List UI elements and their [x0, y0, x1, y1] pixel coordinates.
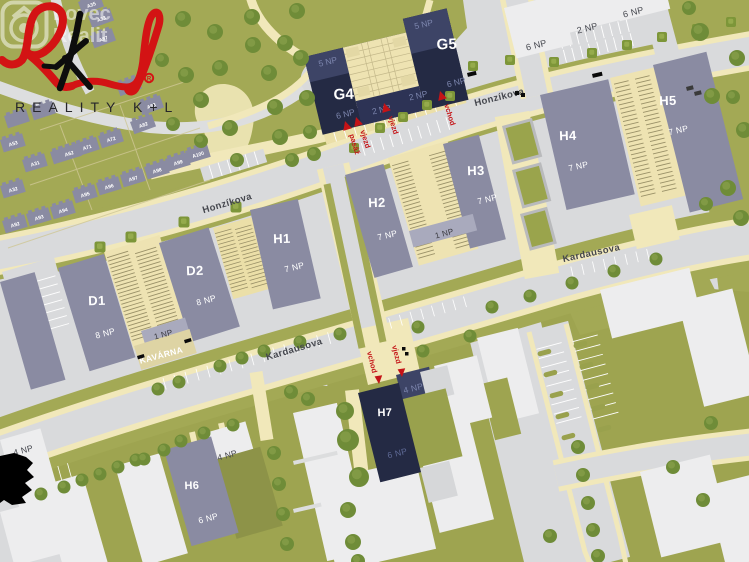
- svg-text:H3: H3: [467, 163, 485, 179]
- svg-text:H1: H1: [273, 231, 291, 247]
- svg-text:H5: H5: [659, 93, 677, 109]
- svg-text:D1: D1: [88, 293, 106, 309]
- svg-text:G5: G5: [436, 36, 457, 54]
- svg-text:D2: D2: [186, 263, 204, 279]
- svg-text:H4: H4: [559, 128, 577, 144]
- svg-text:G4: G4: [333, 86, 355, 104]
- svg-text:R: R: [147, 77, 152, 83]
- svg-text:H6: H6: [184, 480, 199, 493]
- svg-text:H7: H7: [377, 407, 392, 420]
- svg-text:H2: H2: [368, 195, 386, 211]
- svg-text:REALITY K+L: REALITY K+L: [15, 99, 179, 115]
